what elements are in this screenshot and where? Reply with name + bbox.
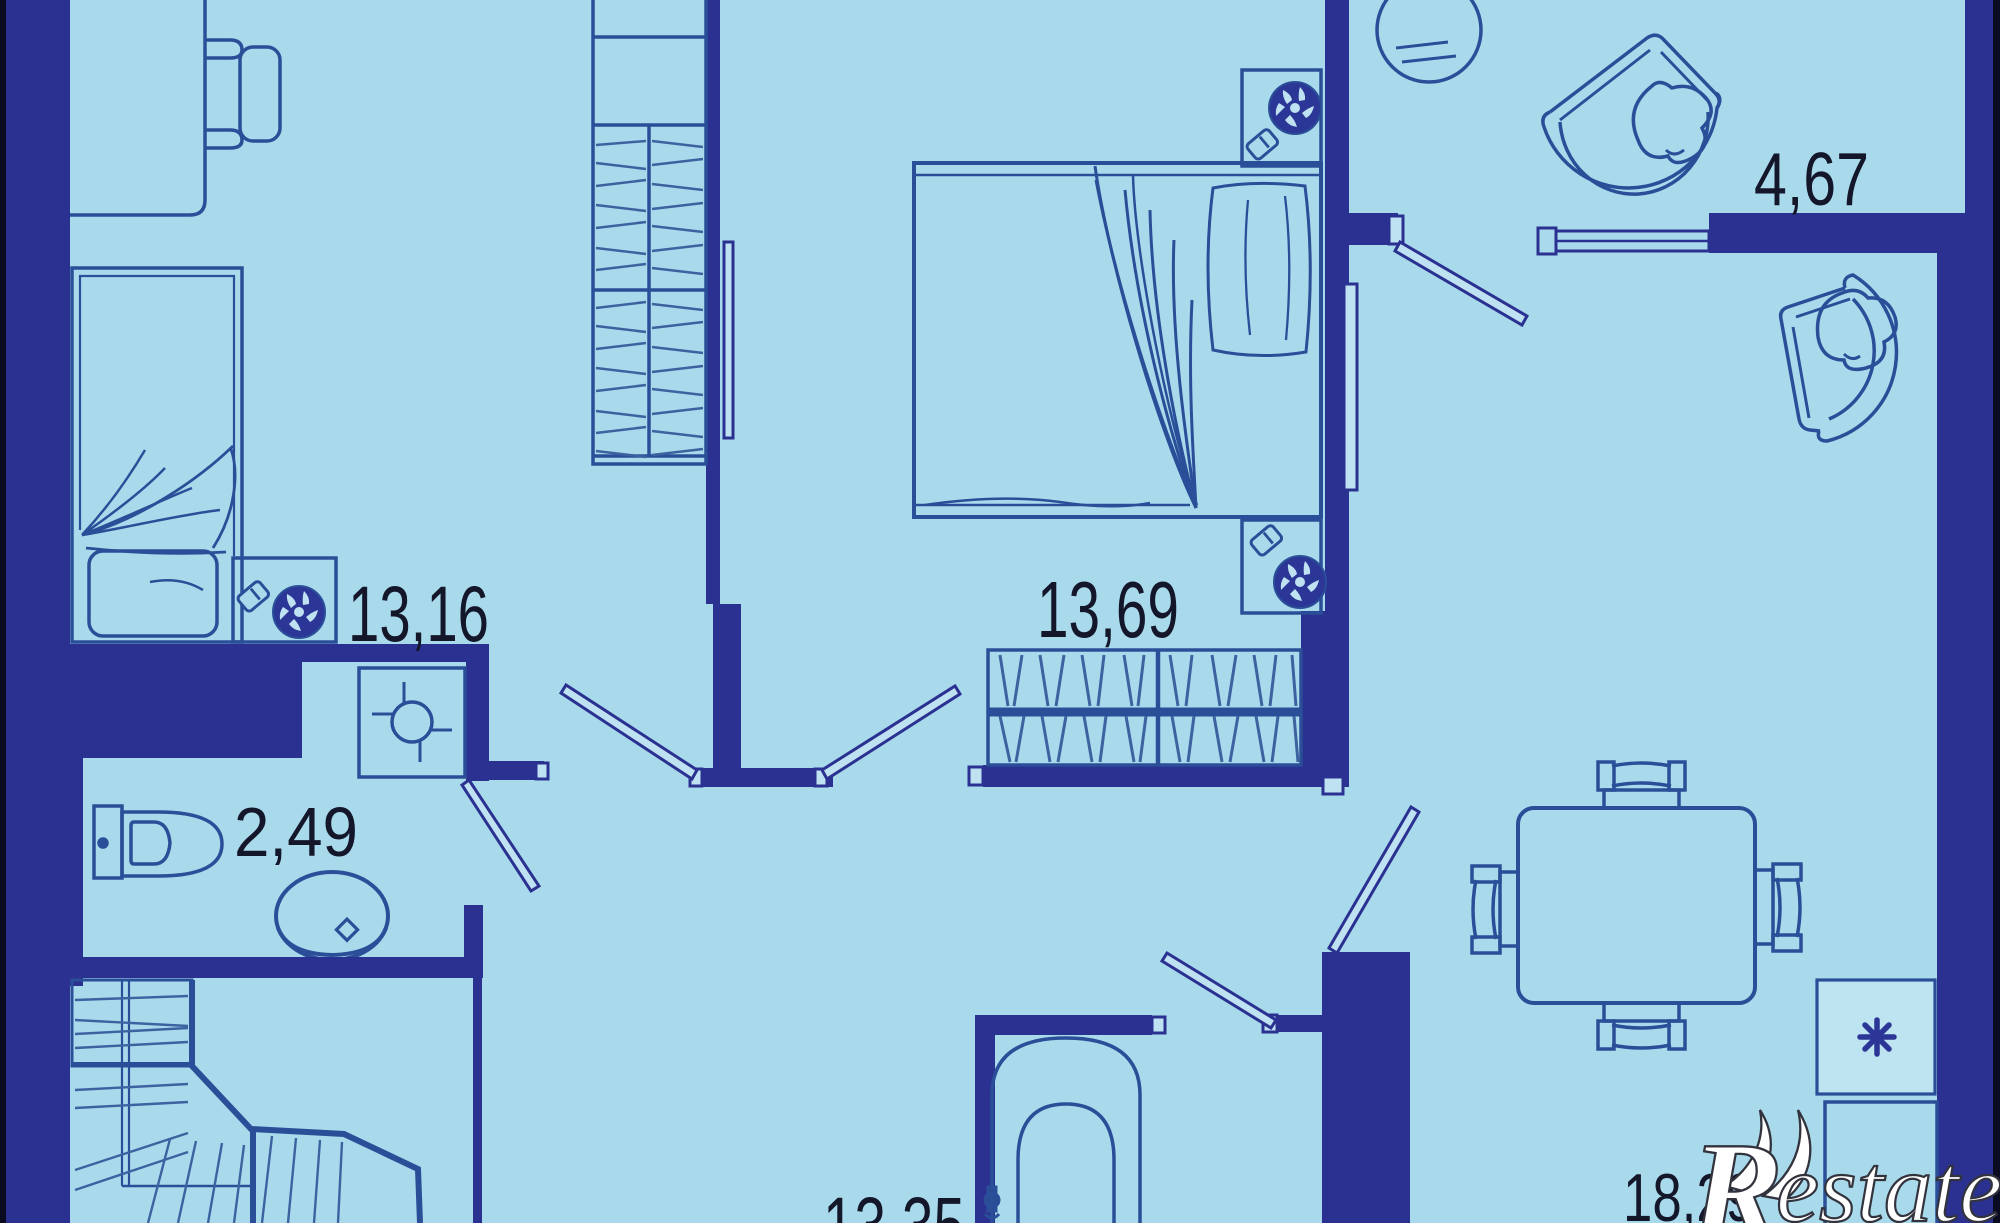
svg-text:13,35: 13,35 [823, 1180, 965, 1223]
svg-text:estate: estate [1776, 1135, 2000, 1223]
svg-text:13,69: 13,69 [1037, 565, 1179, 654]
svg-text:13,16: 13,16 [348, 569, 489, 658]
svg-text:4,67: 4,67 [1754, 137, 1869, 221]
svg-text:2,49: 2,49 [234, 793, 358, 871]
svg-text:R: R [1689, 1114, 1783, 1223]
